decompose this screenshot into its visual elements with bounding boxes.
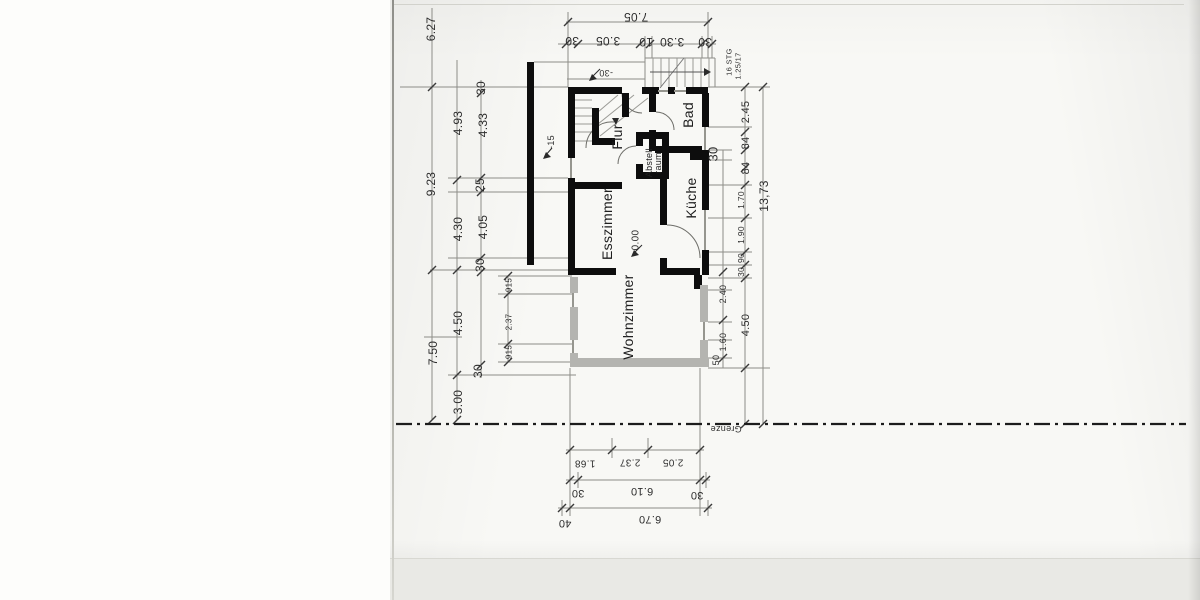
dim-label-left-small: 2.37 <box>505 314 514 331</box>
window-line <box>572 340 574 353</box>
planned-wall-segment <box>700 285 708 322</box>
dim-label-right-total: 13,73 <box>757 180 771 212</box>
dim-label-left-inner: 30 <box>473 258 487 272</box>
dim-label-left-middle: 4.30 <box>451 217 465 242</box>
dim-label-bottom-row-2: 30 <box>691 489 704 501</box>
dim-label-top-row-inner: 3.05 <box>596 34 621 48</box>
planned-wall-segment <box>570 358 709 367</box>
dim-label-right-chain-large: 84 <box>740 137 752 150</box>
dim-label-left-outer: 6.27 <box>424 17 438 42</box>
side-offset-annotation: -15 <box>546 135 556 149</box>
window-line <box>703 322 705 340</box>
wall-segment <box>649 93 656 112</box>
boundary-label: Grenze <box>710 424 741 434</box>
dim-label-right-chain-small: 30 <box>736 267 746 277</box>
room-label: Küche <box>683 177 699 218</box>
dim-label-right-chain-large: 4.50 <box>740 314 752 337</box>
dim-label-bottom-row-1: 2.05 <box>663 457 684 468</box>
dim-label-bottom-row-1: 2.37 <box>620 457 641 468</box>
wall-segment <box>570 268 616 275</box>
wall-segment <box>702 250 709 275</box>
room-label: Bad <box>680 102 696 128</box>
dim-label-bottom-row-3: 40 <box>559 517 572 529</box>
dim-label-left-inner: 30 <box>471 364 485 378</box>
dim-label-left-inner: 25 <box>473 178 487 192</box>
stair-ratio-annotation: 1.25/17 <box>734 52 743 79</box>
dim-label-right-chain-small: 1.70 <box>736 191 746 209</box>
dim-label-bottom-row-2: 30 <box>572 487 585 499</box>
wall-segment <box>527 62 534 265</box>
planned-wall-segment <box>570 307 578 340</box>
planned-wall-segment <box>570 277 578 293</box>
window-line <box>704 210 706 250</box>
wall-segment <box>636 132 663 139</box>
scanned-floorplan-page: 7.05303.05103.30306.279.237.504.934.304.… <box>0 0 1200 600</box>
room-label: Esszimmer <box>599 188 615 260</box>
room-label: Wohnzimmer <box>620 274 636 359</box>
dim-label-top-row-inner: 30 <box>565 34 579 48</box>
dim-label-right-chain-large: 84 <box>740 162 752 175</box>
extension-and-dimension-lines <box>400 8 770 516</box>
wall-segment <box>568 178 575 275</box>
window-line <box>570 158 572 178</box>
room-label: raum <box>653 152 663 174</box>
wall-segment <box>622 93 629 117</box>
wall-segment <box>662 132 669 179</box>
dim-label-left-middle: 4.93 <box>451 111 465 136</box>
dim-label-left-small: 915 <box>505 278 514 292</box>
dim-label-left-inner: 4.33 <box>476 113 490 138</box>
dim-label-top-row-outer: 7.05 <box>624 10 649 24</box>
dim-label-left-small: 915 <box>505 345 514 359</box>
wall-segment <box>568 87 622 94</box>
dim-label-left-inner: 30 <box>474 81 488 95</box>
dim-label-top-row-inner: 10 <box>639 35 653 49</box>
wall-segment <box>660 179 667 225</box>
wall-segment <box>702 93 709 127</box>
dim-label-bottom-row-1: 1.68 <box>575 458 596 469</box>
dim-label-right-inner: 1.60 <box>718 333 728 352</box>
window-line <box>658 90 668 92</box>
dim-label-right-inner: 50 <box>711 355 721 366</box>
dim-label-right-chain-small: 90 <box>736 253 746 263</box>
dim-label-left-middle: 3.00 <box>451 390 465 415</box>
stair-count-annotation: 16 STG <box>725 48 734 76</box>
dim-label-bottom-row-2: 6.10 <box>631 485 654 497</box>
dim-label-top-row-inner: 30 <box>698 35 712 49</box>
dim-label-right-inner: 2.40 <box>718 285 728 304</box>
dim-label-bottom-row-3: 6.70 <box>639 513 662 525</box>
dim-label-right-chain-large: 2.45 <box>740 101 752 124</box>
wall-segment <box>636 139 643 146</box>
window-line <box>572 293 574 307</box>
dim-label-left-middle: 4.50 <box>451 311 465 336</box>
planned-wall-segment <box>700 340 708 358</box>
wall-segment <box>568 93 575 158</box>
dim-label-top-row-inner: 3.30 <box>660 35 685 49</box>
dim-label-left-inner: 4.05 <box>476 215 490 240</box>
window-line <box>674 90 686 92</box>
dim-label-right-step: 30 <box>706 146 721 161</box>
wall-segment <box>662 268 700 275</box>
entrance-offset-annotation: -30 <box>599 68 613 78</box>
floor-level-annotation: 0.00 <box>631 230 642 251</box>
dim-label-right-chain-small: 1.90 <box>736 226 746 244</box>
room-label: Flur <box>609 124 625 149</box>
dim-label-left-outer: 7.50 <box>426 341 440 366</box>
dim-label-left-outer: 9.23 <box>424 172 438 197</box>
